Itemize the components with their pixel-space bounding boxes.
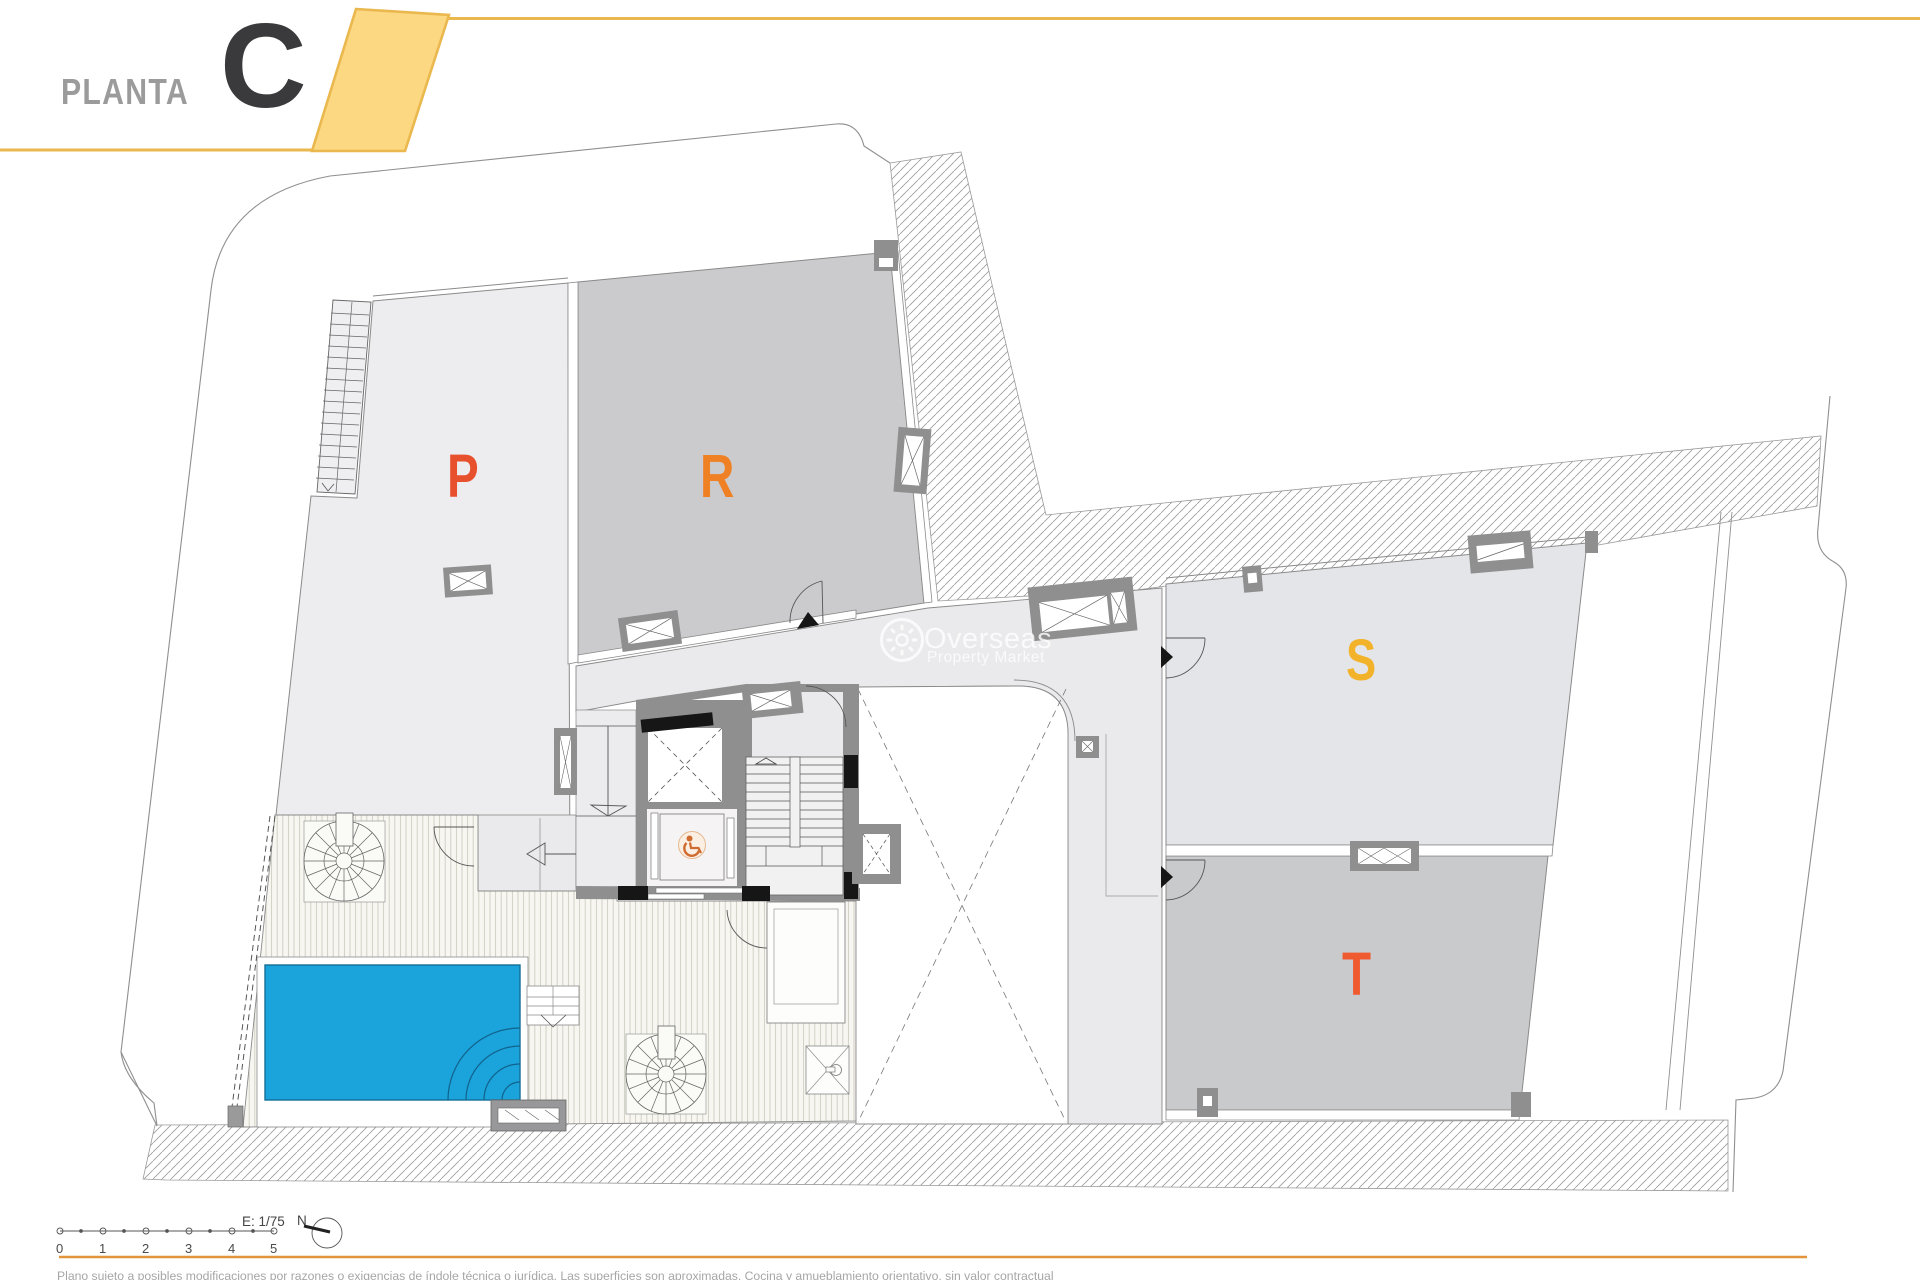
svg-text:R: R — [700, 441, 734, 510]
svg-text:T: T — [1342, 939, 1371, 1008]
svg-text:P: P — [447, 441, 479, 510]
svg-text:S: S — [1346, 629, 1376, 694]
svg-text:0: 0 — [56, 1241, 63, 1256]
svg-text:C: C — [220, 0, 307, 133]
svg-text:4: 4 — [228, 1241, 235, 1256]
svg-text:1: 1 — [99, 1241, 106, 1256]
svg-text:5: 5 — [270, 1241, 277, 1256]
svg-text:E: 1/75: E: 1/75 — [242, 1214, 285, 1229]
svg-text:2: 2 — [142, 1241, 149, 1256]
svg-text:Property Market: Property Market — [927, 649, 1045, 666]
svg-text:Plano sujeto a posibles modifi: Plano sujeto a posibles modificaciones p… — [57, 1269, 1054, 1280]
svg-text:PLANTA: PLANTA — [61, 73, 189, 113]
svg-text:3: 3 — [185, 1241, 192, 1256]
